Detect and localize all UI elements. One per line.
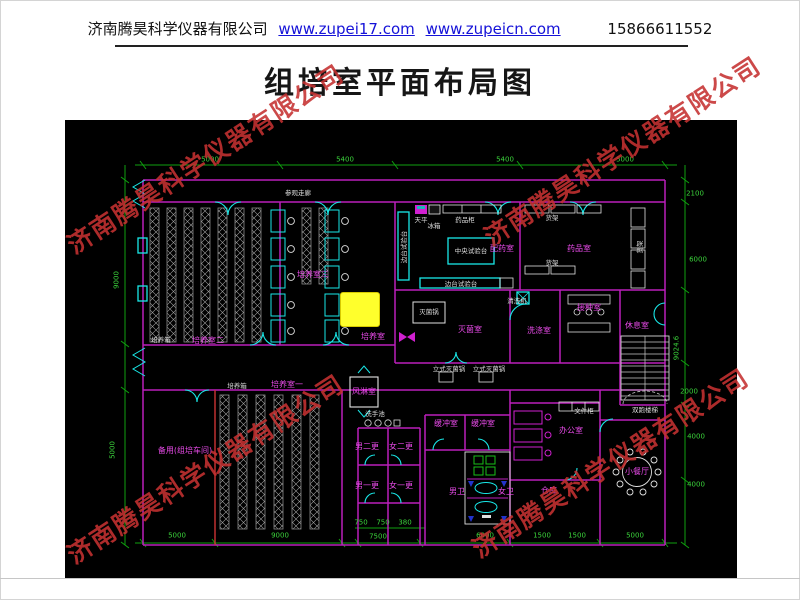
air-shower-box bbox=[350, 377, 378, 407]
wash-basins bbox=[365, 420, 400, 426]
company-name: 济南腾昊科学仪器有限公司 bbox=[88, 20, 268, 38]
page-header: 济南腾昊科学仪器有限公司 www.zupei17.com www.zupeicn… bbox=[0, 18, 800, 39]
staircase bbox=[621, 336, 669, 404]
link-zupeicn[interactable]: www.zupeicn.com bbox=[426, 20, 561, 38]
link-zupei17[interactable]: www.zupei17.com bbox=[278, 20, 414, 38]
autoclave-box bbox=[413, 302, 445, 323]
air-shower-arrows bbox=[358, 366, 370, 417]
image-bottom-edge bbox=[0, 578, 800, 579]
header-divider bbox=[115, 45, 688, 47]
phone-number: 15866611552 bbox=[607, 20, 712, 38]
vertical-autoclaves bbox=[439, 372, 493, 382]
office-furniture bbox=[514, 402, 599, 460]
fan-icon bbox=[399, 332, 415, 342]
page: 济南腾昊科学仪器有限公司 www.zupei17.com www.zupeicn… bbox=[0, 0, 800, 600]
clean-benches bbox=[568, 295, 610, 332]
sink-x bbox=[517, 292, 529, 304]
highlight-square bbox=[340, 292, 380, 327]
